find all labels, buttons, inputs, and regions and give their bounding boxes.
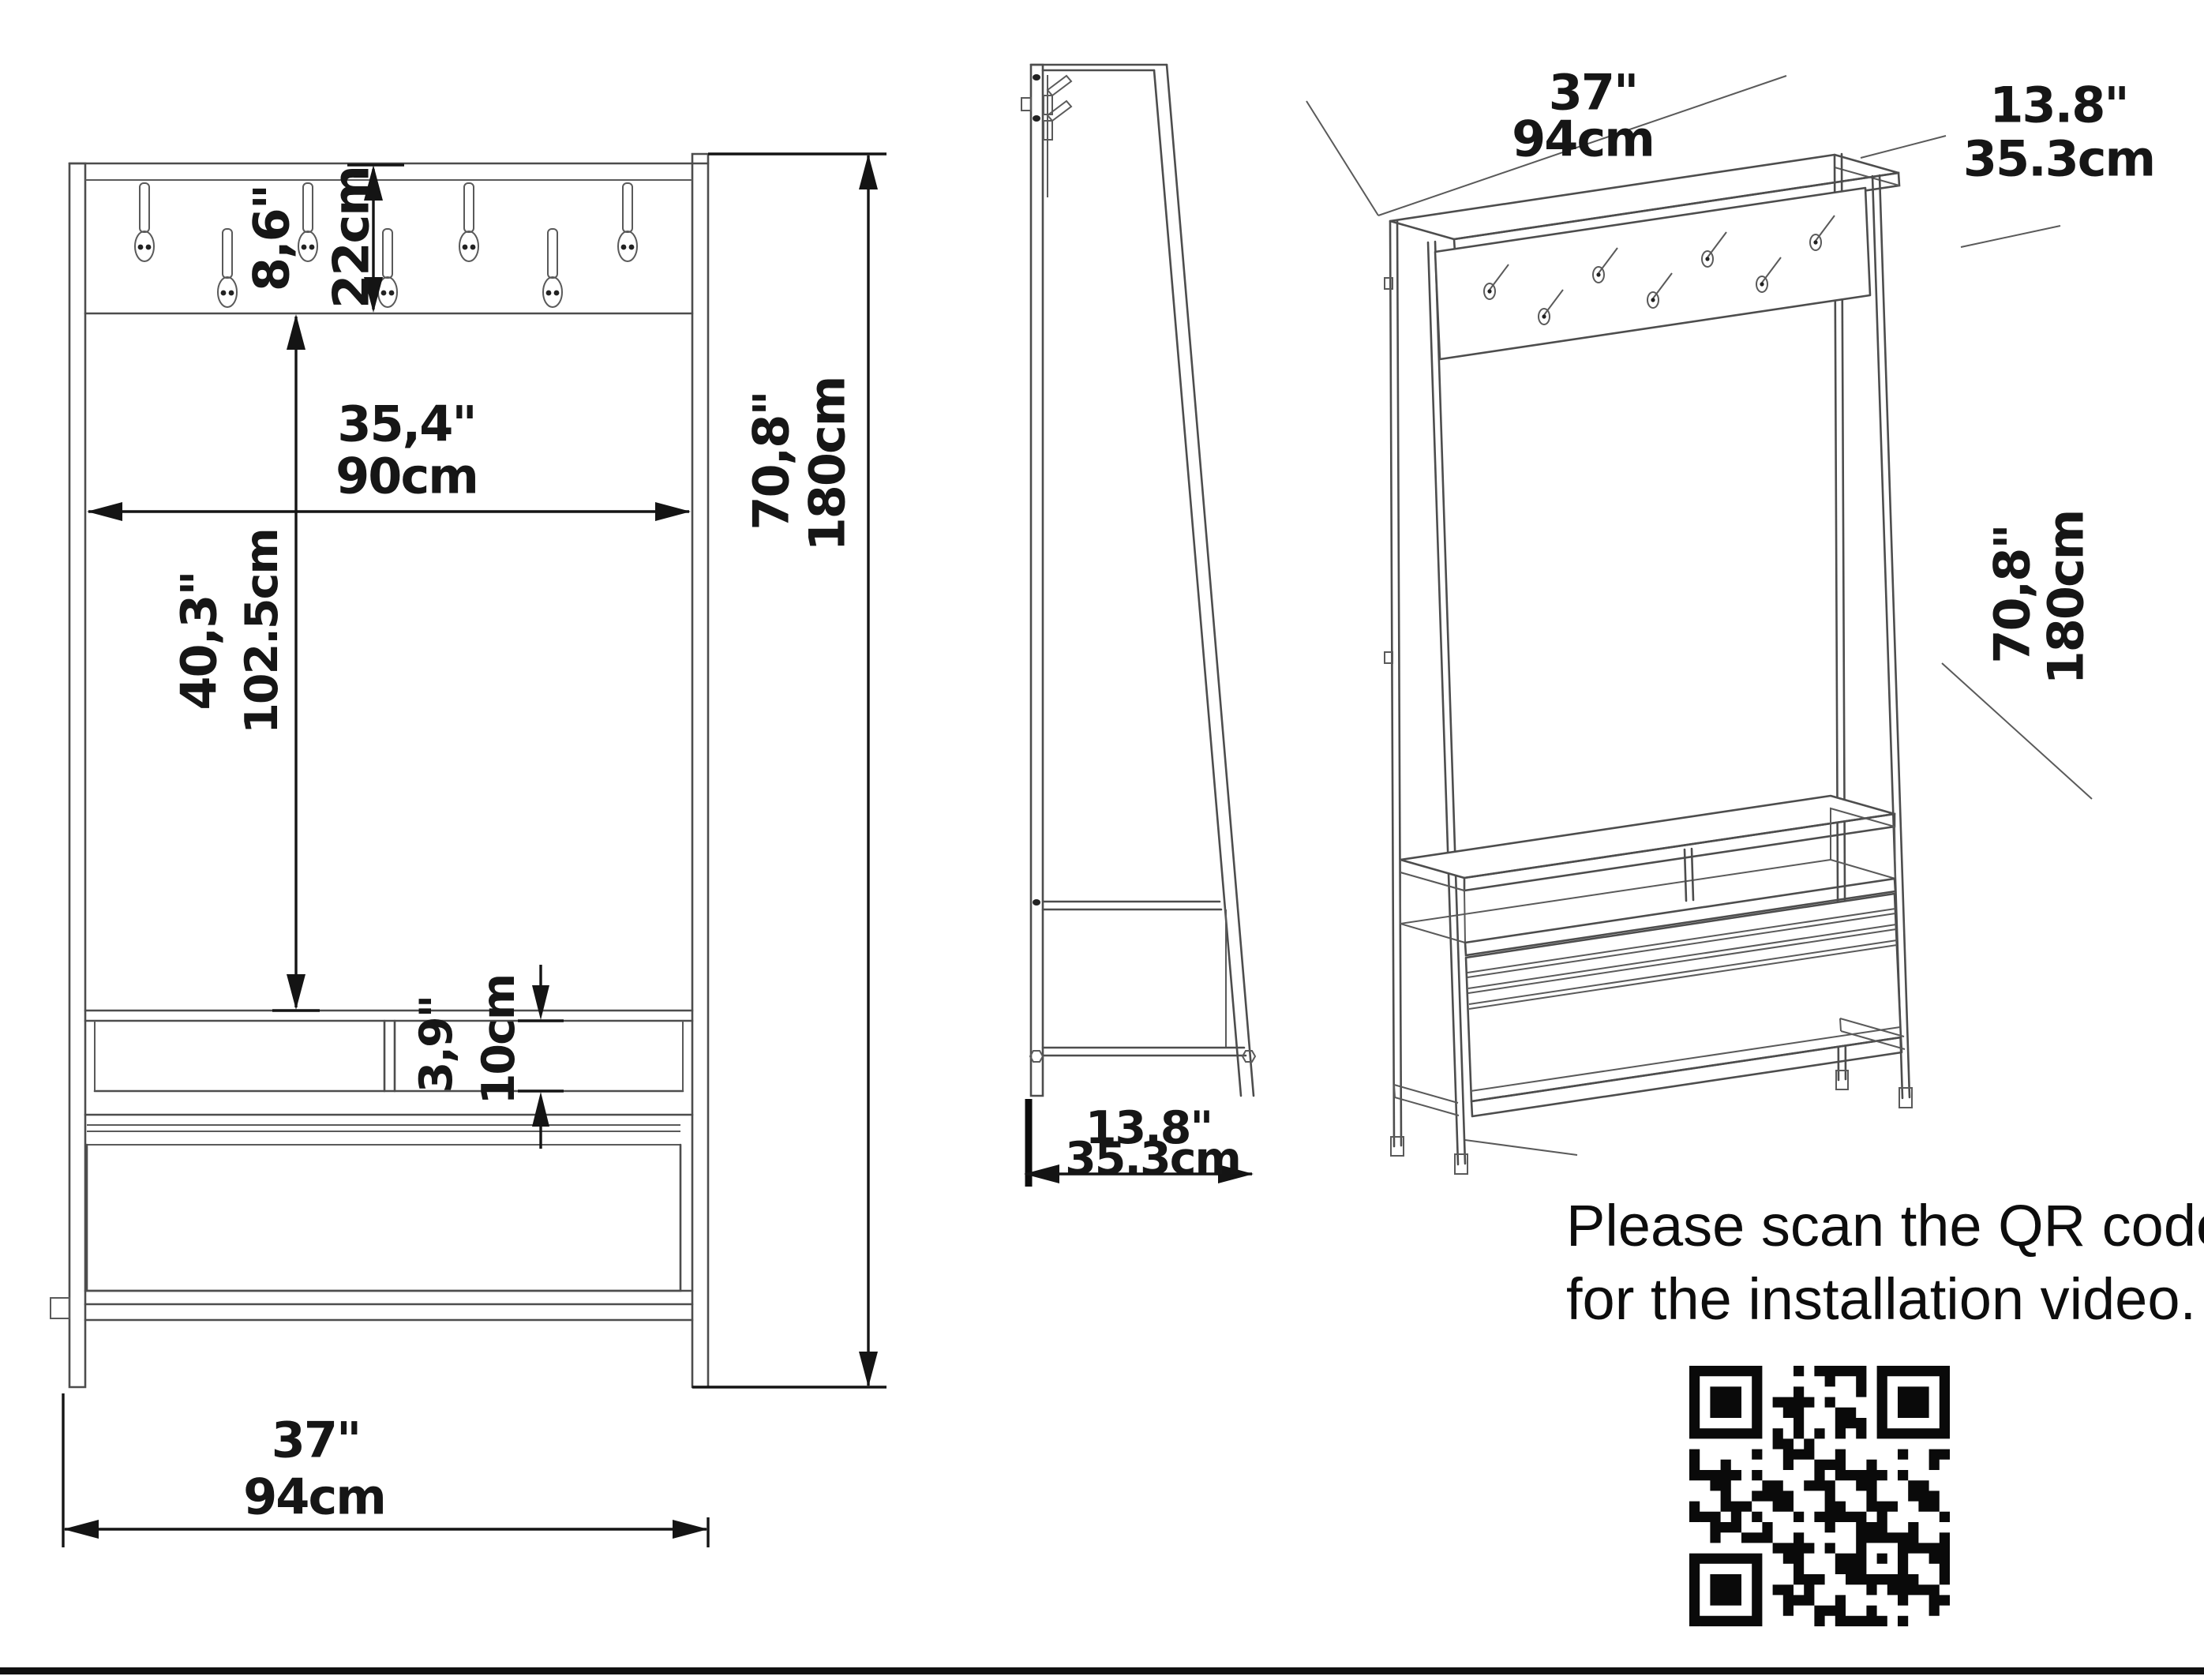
drawer-top-rails xyxy=(87,1125,680,1145)
dim-open-height: 40,3" 102.5cm xyxy=(171,314,320,1011)
side-base-rail xyxy=(1043,1048,1246,1056)
dim-innerwidth-cm: 90cm xyxy=(335,448,478,505)
front-right-panel xyxy=(692,154,708,1387)
side-bench-top xyxy=(1043,902,1221,909)
iso-height-cm: 180cm xyxy=(2037,511,2095,685)
coat-hook xyxy=(218,229,237,307)
side-top-cap xyxy=(1031,65,1167,70)
dim-openheight-cm: 102.5cm xyxy=(236,529,288,733)
dim-depth: 13.8" 35.3cm xyxy=(1024,1099,1254,1187)
note-line-2: for the installation video. xyxy=(1566,1266,2196,1332)
coat-hook xyxy=(618,183,637,261)
coat-hook xyxy=(459,183,478,261)
leader-line xyxy=(1306,101,1378,216)
dim-hookboard-cm: 22cm xyxy=(323,167,380,309)
side-front-leg-slant xyxy=(1154,65,1254,1096)
footer-rule xyxy=(0,1667,2204,1674)
side-view: 13.8" 35.3cm xyxy=(1021,65,1255,1187)
shelf-side-walls xyxy=(95,1021,683,1091)
wall-bracket-front xyxy=(51,1298,69,1318)
wall-bracket-side xyxy=(1021,98,1031,111)
iso-width-cm: 94cm xyxy=(1512,111,1654,168)
hex-bolt xyxy=(1030,1051,1043,1062)
iso-front-left-leg xyxy=(1428,242,1465,1164)
note-text: Please scan the QR code for the installa… xyxy=(1566,1193,2204,1332)
dim-total-height: 70,8" 180cm xyxy=(692,154,886,1387)
bench-top xyxy=(85,1011,692,1021)
screw xyxy=(1033,899,1040,906)
dim-totalheight-inches: 70,8" xyxy=(743,392,800,530)
shelf-divider xyxy=(384,1021,395,1091)
dim-totalwidth-cm: 94cm xyxy=(243,1468,385,1526)
coat-hook xyxy=(135,183,154,261)
dim-hookboard-height: 8,6" 22cm xyxy=(243,165,405,313)
coat-hook xyxy=(298,183,317,261)
dim-innerwidth-inches: 35,4" xyxy=(337,396,475,453)
iso-height-inches: 70,8" xyxy=(1984,525,2041,663)
drawer-front-panel xyxy=(87,1145,680,1291)
iso-base-rail-left xyxy=(1394,1085,1459,1116)
dim-openheight-inches: 40,3" xyxy=(171,572,228,710)
dim-depth-cm: 35.3cm xyxy=(1065,1133,1240,1185)
iso-depth-inches: 13.8" xyxy=(1989,77,2127,134)
leader-line xyxy=(1961,226,2060,247)
coat-hook xyxy=(543,229,562,307)
dim-shelfgap-cm: 10cm xyxy=(473,975,525,1105)
dim-hookboard-inches: 8,6" xyxy=(243,186,301,291)
base-rail xyxy=(85,1304,692,1320)
iso-depth-cm: 35.3cm xyxy=(1963,130,2154,188)
dim-shelfgap-inches: 3,9" xyxy=(410,996,463,1093)
side-back-panel xyxy=(1031,65,1043,1096)
technical-drawing-page: 8,6" 22cm 35,4" 90cm 40,3" 102.5cm 3,9" xyxy=(0,0,2204,1680)
note-line-1: Please scan the QR code xyxy=(1566,1193,2204,1258)
dim-totalheight-cm: 180cm xyxy=(799,377,856,552)
iso-view: 37" 94cm 13.8" 35.3cm 70,8" 180cm xyxy=(1306,64,2154,1175)
screw xyxy=(1033,74,1040,81)
leader-line xyxy=(1465,1140,1577,1155)
screw xyxy=(1033,115,1040,122)
qr-code xyxy=(1689,1366,1950,1626)
front-left-panel xyxy=(69,163,85,1387)
dim-total-width: 37" 94cm xyxy=(63,1393,708,1547)
coat-hook-side xyxy=(1048,101,1071,121)
coat-hook xyxy=(378,229,397,307)
dim-totalwidth-inches: 37" xyxy=(272,1412,361,1469)
front-view: 8,6" 22cm 35,4" 90cm 40,3" 102.5cm 3,9" xyxy=(51,154,886,1547)
dim-shelf-gap: 3,9" 10cm xyxy=(410,965,564,1149)
dim-inner-width: 35,4" 90cm xyxy=(87,396,691,522)
leader-line xyxy=(1861,136,1946,158)
front-hooks xyxy=(135,183,637,307)
qr-modules xyxy=(1689,1366,1950,1626)
iso-back-left-leg xyxy=(1390,220,1401,1146)
coat-hook-side xyxy=(1048,76,1071,96)
